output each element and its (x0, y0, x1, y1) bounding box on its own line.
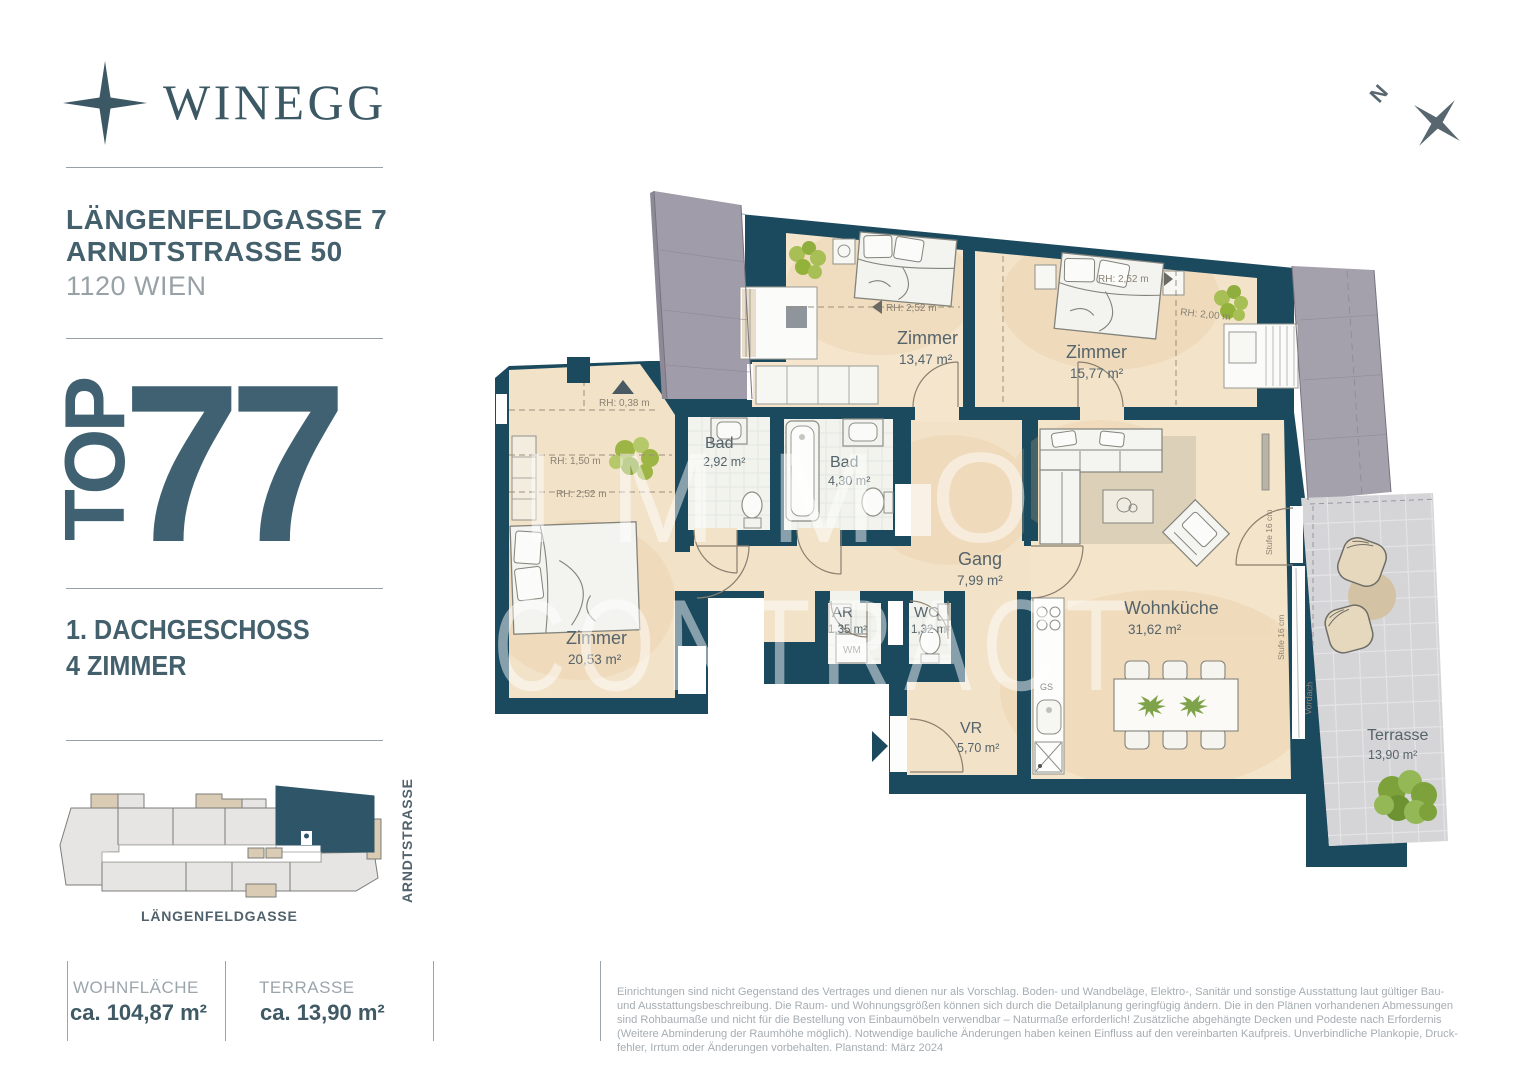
svg-text:N: N (1366, 81, 1393, 108)
svg-text:5,70 m²: 5,70 m² (957, 741, 999, 755)
svg-text:RH: 0,38 m: RH: 0,38 m (599, 398, 650, 409)
svg-text:IMMO: IMMO (520, 427, 1084, 570)
svg-text:RH: 2,52 m: RH: 2,52 m (886, 303, 937, 314)
svg-text:RH: 2,52 m: RH: 2,52 m (1098, 274, 1149, 285)
svg-text:Stufe 16 cm: Stufe 16 cm (1276, 615, 1286, 660)
svg-text:13,90 m²: 13,90 m² (1368, 748, 1417, 762)
svg-text:Zimmer: Zimmer (897, 328, 958, 348)
svg-text:13,47 m²: 13,47 m² (899, 352, 953, 367)
svg-text:VR: VR (960, 720, 982, 737)
svg-text:Terrasse: Terrasse (1367, 727, 1428, 744)
svg-text:15,77 m²: 15,77 m² (1070, 366, 1124, 381)
svg-text:Vordach: Vordach (1303, 682, 1315, 716)
svg-text:ARNDTSTRASSE: ARNDTSTRASSE (399, 778, 415, 903)
svg-text:CONTRACT: CONTRACT (493, 572, 1137, 718)
svg-text:Stufe 16 cm: Stufe 16 cm (1264, 510, 1274, 555)
svg-text:Wohnküche: Wohnküche (1124, 598, 1219, 618)
svg-text:Zimmer: Zimmer (1066, 342, 1127, 362)
